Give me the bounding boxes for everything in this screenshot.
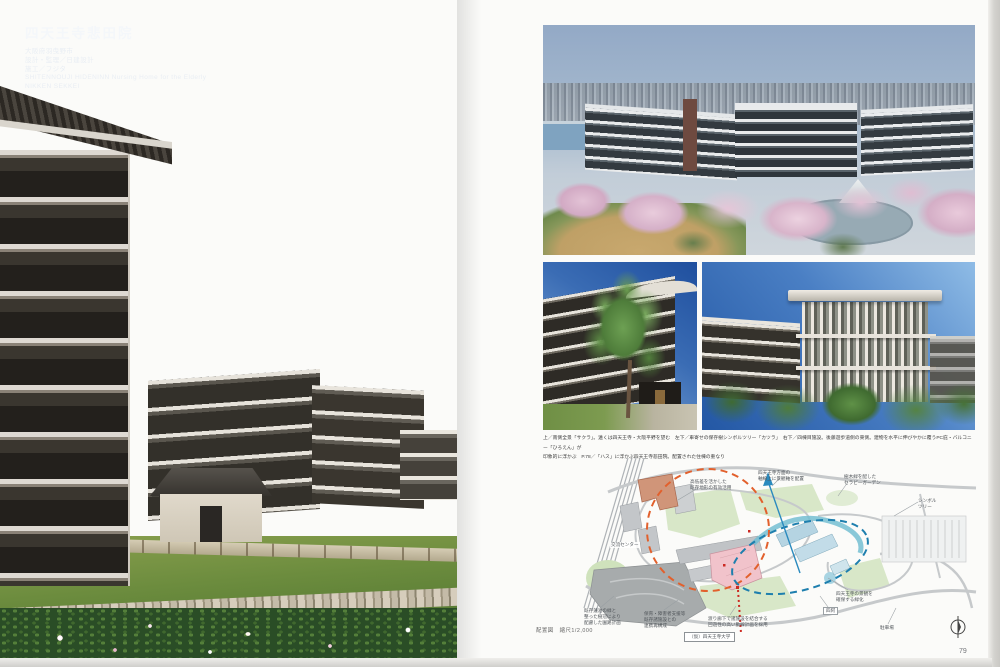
credit-en: NIKKEN SEKKEI	[25, 83, 285, 92]
parking-lot-right	[882, 516, 966, 562]
university-label-box: （仮）四天王寺大学	[684, 632, 735, 642]
credit-design: 設計・監理／日建設計	[25, 57, 285, 66]
photo-aerial-view	[543, 25, 975, 255]
plan-scale-label: 配置図 縮尺1/2,000	[536, 626, 593, 634]
project-location: 大阪府羽曳野市	[25, 48, 285, 57]
photo-louver-facade	[702, 262, 975, 430]
plan-annotation: シンボル ツリー	[918, 498, 936, 510]
blue-roof-building	[543, 121, 589, 150]
credit-builder: 施工／フジタ	[25, 66, 285, 75]
plan-annotation: 四天王寺の景観を 確保する緑化	[836, 591, 873, 603]
site-plan-drawing	[580, 458, 980, 654]
caption-line-1: 上／南側全景「サクラ」。遠くは四天王寺・大阪平野を望む 左下／車寄せの保存樹シン…	[543, 436, 972, 451]
plan-annotation: 駐車場	[880, 625, 894, 631]
foreground-trees	[702, 366, 975, 430]
site-plan: 高低差を活かした 既存地形の有効活用 四天王寺方面の 軸線上に景観軸を配置 樹木…	[580, 458, 980, 654]
plan-annotation: 四阿	[823, 607, 838, 615]
plan-annotation: 保育・障害者支援等 既存諸施設との 連携再構成	[644, 611, 685, 628]
far-right-building	[400, 430, 457, 500]
page-title: 四天王寺悲田院	[25, 22, 285, 42]
plan-annotation: 既存蓮池の緑と 整った樹冠により 配慮した園路計画	[584, 608, 621, 625]
page-number: 79	[959, 648, 967, 655]
plan-annotation: 交流センター	[610, 542, 640, 548]
top-eave	[788, 290, 942, 301]
plan-annotation: 樹木緑を配した セラピーガーデン	[844, 474, 881, 486]
plan-annotation: 高低差を活かした 既存地形の有効活用	[690, 479, 731, 491]
page-gutter-shadow	[457, 0, 501, 660]
magazine-spread-canvas: 四天王寺悲田院 大阪府羽曳野市 設計・監理／日建設計 施工／フジタ SHITEN…	[0, 0, 1000, 667]
photo-main-exterior	[0, 0, 457, 660]
page-edge-bottom	[0, 658, 992, 667]
north-arrow-icon	[951, 616, 965, 638]
lotus-flowers	[0, 608, 457, 660]
plan-annotation: 四天王寺方面の 軸線上に景観軸を配置	[758, 470, 804, 482]
katsura-tree-crown	[571, 270, 675, 396]
blue-buildings	[776, 520, 850, 575]
gatehouse-door	[200, 506, 222, 542]
page-edge-right	[988, 0, 1000, 667]
tower-facade	[0, 150, 130, 586]
project-title-en: SHITENNOUJI HIDENINN Nursing Home for th…	[25, 74, 285, 83]
project-title-block: 四天王寺悲田院 大阪府羽曳野市 設計・監理／日建設計 施工／フジタ SHITEN…	[25, 22, 285, 92]
plan-annotation: 渡り廊下で諸施設を結合する 回遊性の高い動線計画を採用	[708, 616, 768, 628]
pc-slab-upper	[796, 334, 936, 338]
cherry-blossom-trees	[543, 151, 975, 255]
drive-court	[543, 404, 697, 430]
photo-symbol-tree	[543, 262, 697, 430]
